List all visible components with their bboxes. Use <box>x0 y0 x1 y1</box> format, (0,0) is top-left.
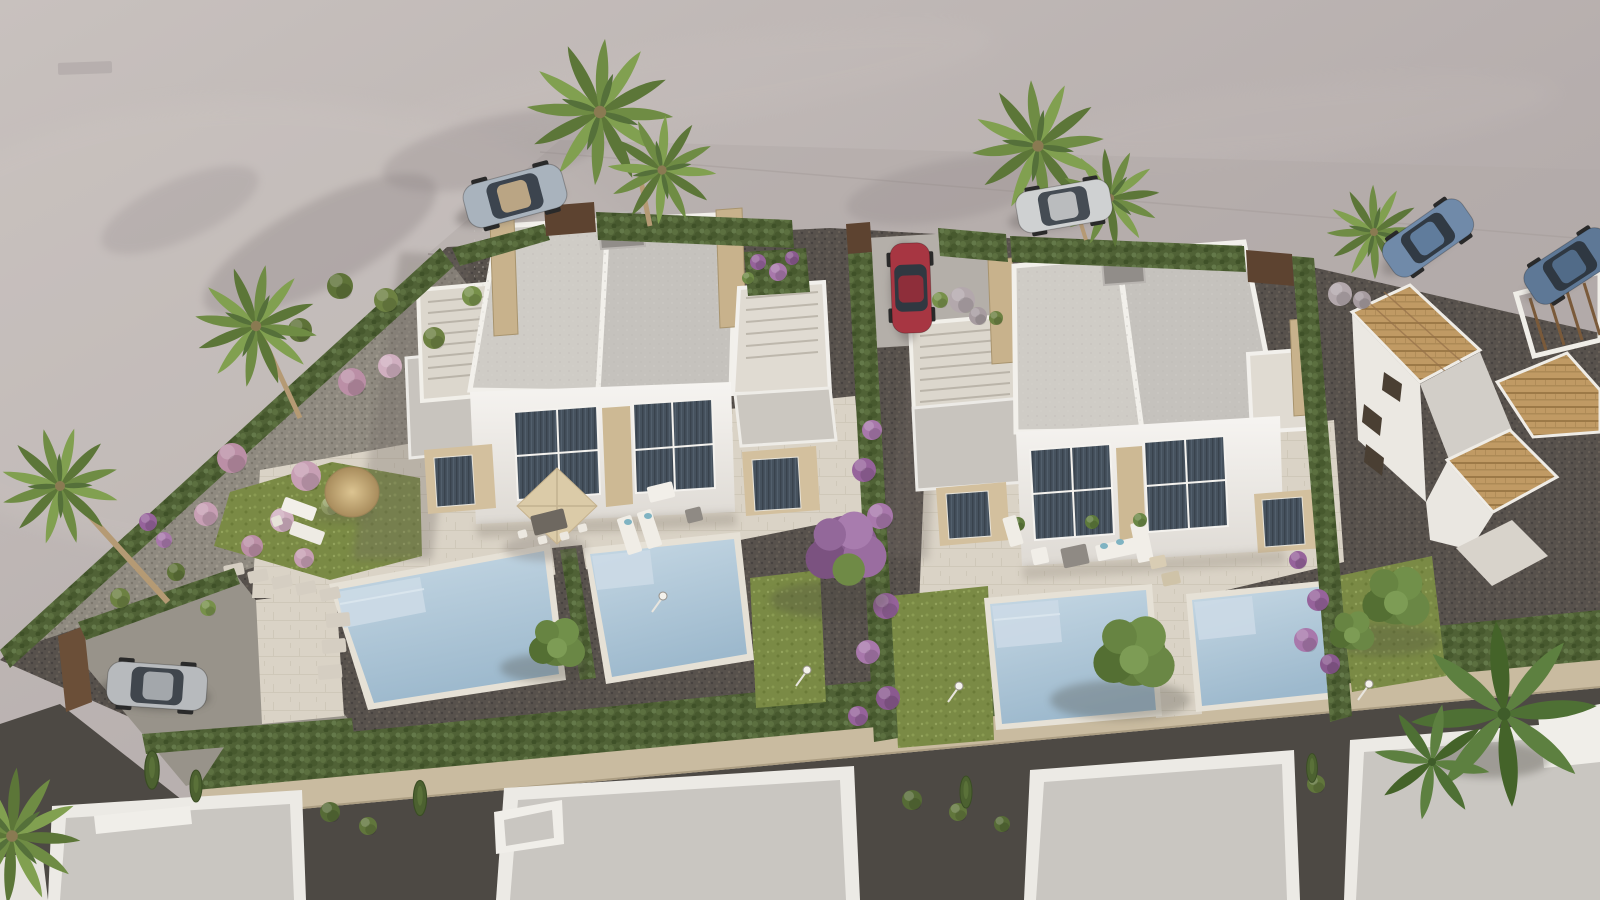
pebble-ball <box>1328 282 1352 306</box>
potted-plant <box>1133 513 1147 527</box>
leafy-tree <box>1362 567 1429 626</box>
stepping-stone <box>317 664 342 680</box>
tree-shadow <box>1050 680 1190 720</box>
cypress <box>413 780 426 815</box>
shrub <box>374 288 398 312</box>
flower-bush <box>378 354 402 378</box>
shrub <box>742 272 754 284</box>
pebble-ball <box>969 307 987 325</box>
blossom <box>848 706 868 726</box>
lounger-pillow <box>644 513 652 519</box>
blossom <box>852 458 876 482</box>
flower-bush <box>156 532 172 548</box>
left-villa-terrace-annex <box>735 388 836 446</box>
leafy-tree <box>1330 611 1375 650</box>
pavement-mark <box>58 61 112 75</box>
flower-bush <box>294 548 314 568</box>
shrub <box>327 273 353 299</box>
shrub <box>167 563 185 581</box>
left-villa-party-wall <box>602 406 633 507</box>
cypress <box>1307 754 1318 783</box>
gap-shrub <box>902 790 922 810</box>
car-suv-silver <box>105 657 208 716</box>
pool-3-steps <box>992 600 1062 648</box>
sofa-pillow <box>1100 543 1108 549</box>
blossom <box>856 640 880 664</box>
blossom <box>769 263 787 281</box>
stepping-stone <box>321 638 346 654</box>
right-villa-roof-speckle <box>1018 246 1276 428</box>
right-villa-door-east <box>1262 497 1305 547</box>
flower-bush <box>217 443 247 473</box>
cypress <box>190 770 202 802</box>
shrub <box>200 600 216 616</box>
walkway-left-villa <box>256 590 344 724</box>
fence-north-3 <box>1246 250 1294 286</box>
aerial-architectural-render: Aerial 3D architectural rendering of a M… <box>0 0 1600 900</box>
shrub <box>462 286 482 306</box>
grass-tuft <box>932 292 948 308</box>
gap-shrub <box>320 802 340 822</box>
shrub <box>110 588 130 608</box>
lounger-pillow <box>624 519 632 525</box>
blossom <box>750 254 766 270</box>
fence-north-2 <box>846 222 872 254</box>
shrub <box>423 327 445 349</box>
blossom <box>1307 589 1329 611</box>
leafy-tree <box>1093 616 1174 687</box>
flower-bush <box>338 368 366 396</box>
blossom <box>876 686 900 710</box>
lounge-armchair <box>1031 547 1050 566</box>
blossom <box>862 420 882 440</box>
right-villa-door-west <box>946 491 991 539</box>
flower-bush <box>291 461 321 491</box>
cypress <box>145 751 159 789</box>
gap-shrub <box>359 817 377 835</box>
left-villa-door-east <box>752 457 801 511</box>
pool-4-steps <box>1194 596 1256 640</box>
blossom <box>785 251 799 265</box>
flower-bush <box>241 535 263 557</box>
bottom-house-3-roof <box>1036 764 1287 900</box>
blossom <box>1294 628 1318 652</box>
cypress <box>960 776 972 808</box>
left-villa-door-west <box>434 455 475 507</box>
blossom <box>1289 551 1307 569</box>
leafy-tree <box>529 618 585 667</box>
thatch-parasol <box>325 467 379 517</box>
pebble-ball <box>949 287 975 313</box>
tree-shadow <box>770 582 890 618</box>
scene-canvas <box>0 0 1600 900</box>
pool-2-steps <box>592 550 654 590</box>
right-villa-garage-roof <box>913 398 1026 490</box>
stepping-stone <box>325 612 350 628</box>
blossom <box>1320 654 1340 674</box>
car-red <box>886 242 936 334</box>
sofa-pillow <box>1116 539 1124 545</box>
lawn-right-villa <box>890 586 994 748</box>
potted-plant <box>1085 515 1099 529</box>
grass-tuft <box>989 311 1003 325</box>
flower-bush <box>139 513 157 531</box>
pebble-ball <box>1353 291 1371 309</box>
gap-shrub <box>994 816 1010 832</box>
flower-bush <box>194 502 218 526</box>
